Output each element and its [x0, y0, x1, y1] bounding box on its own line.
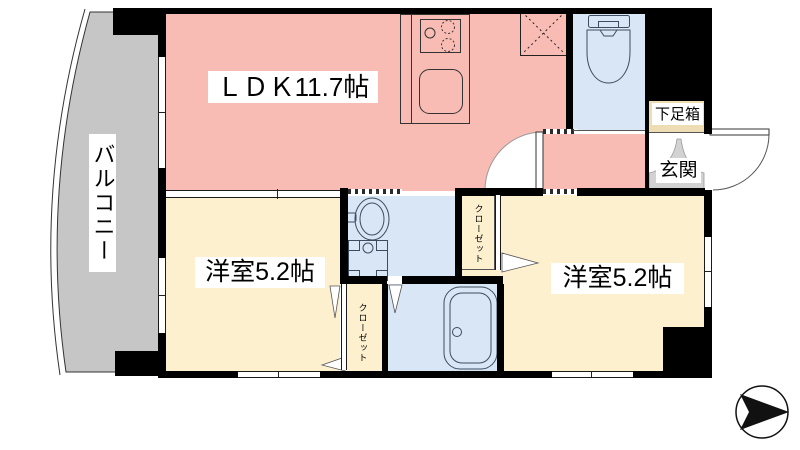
toilet-room-threshold: [573, 130, 645, 131]
wall-washroom-left: [340, 188, 348, 284]
partition-tick: [277, 189, 278, 199]
front-door-swing: [713, 135, 769, 190]
closet-right-label: クローゼット: [471, 202, 485, 266]
wall-bath-left: [382, 284, 388, 371]
window-tick: [159, 112, 165, 113]
window-tick: [278, 372, 279, 377]
shoe-cabinet-threshold: [649, 132, 704, 133]
bathroom-door-icon: [389, 285, 402, 313]
wall-corner-block: [663, 327, 705, 372]
toilet-icon: [587, 16, 630, 84]
wall-bottom-c: [633, 371, 712, 378]
closet-left-door-icon-top: [330, 286, 340, 318]
wall-bath-right: [497, 284, 504, 371]
refrigerator-space-icon: [521, 11, 567, 56]
sliding-door-washroom: [348, 189, 402, 194]
front-door-leaf: [710, 129, 769, 135]
wall-bottom-b: [320, 371, 552, 378]
balcony-pier-bottom: [115, 351, 162, 376]
wall-bottom-a: [158, 371, 238, 378]
wall-washroom-right: [455, 188, 462, 276]
shoe-cabinet-label: 下足箱: [652, 103, 703, 125]
kitchen-counter-icon: [401, 15, 470, 124]
wall-left-b: [158, 168, 166, 258]
closet-right-door-icon: [502, 253, 538, 272]
compass-icon: [736, 386, 789, 438]
sink-icon: [420, 70, 463, 114]
bedroom-left-label: 洋室5.2帖: [195, 257, 325, 288]
washbasin-icon: [344, 198, 389, 240]
window-tick: [591, 372, 592, 377]
floorplan-canvas: ＬＤＫ11.7帖 洋室5.2帖 洋室5.2帖 バルコニー クローゼット クローゼ…: [0, 0, 800, 450]
closet-left-door-line: [341, 284, 347, 370]
wall-wet-split-b: [402, 276, 503, 284]
window-bedroom-right-bottom: [552, 371, 633, 378]
window-tick: [705, 271, 711, 272]
wall-hall-bottom-b: [577, 188, 705, 196]
bathtub-icon: [444, 287, 497, 369]
wall-wet-split-a: [340, 276, 387, 284]
ldk-label: ＬＤＫ11.7帖: [208, 71, 378, 103]
hall-door-leaf: [536, 132, 543, 190]
wall-entry-block: [645, 8, 712, 101]
window-bedroom-right-side: [704, 237, 712, 307]
wall-top: [158, 8, 712, 14]
bedroom-right-label: 洋室5.2帖: [551, 263, 684, 294]
wall-right-b: [704, 190, 712, 237]
balcony-label: バルコニー: [89, 134, 116, 272]
balcony-pier-top: [113, 8, 162, 35]
partition-ldk-bedroom: [166, 190, 340, 198]
closet-left-label: クローゼット: [355, 300, 369, 366]
washing-machine-icon: [349, 241, 388, 281]
wall-toilet-left: [566, 8, 573, 134]
hall-door-swing: [485, 132, 543, 190]
sliding-door-hall-bottom: [543, 189, 577, 194]
window-tick: [159, 295, 165, 296]
window-bedroom-left-bottom: [238, 371, 320, 378]
wall-right-c: [704, 307, 712, 378]
closet-right-door-line: [495, 195, 501, 270]
entrance-label: 玄関: [656, 158, 701, 183]
wall-entry-thin: [645, 101, 649, 190]
